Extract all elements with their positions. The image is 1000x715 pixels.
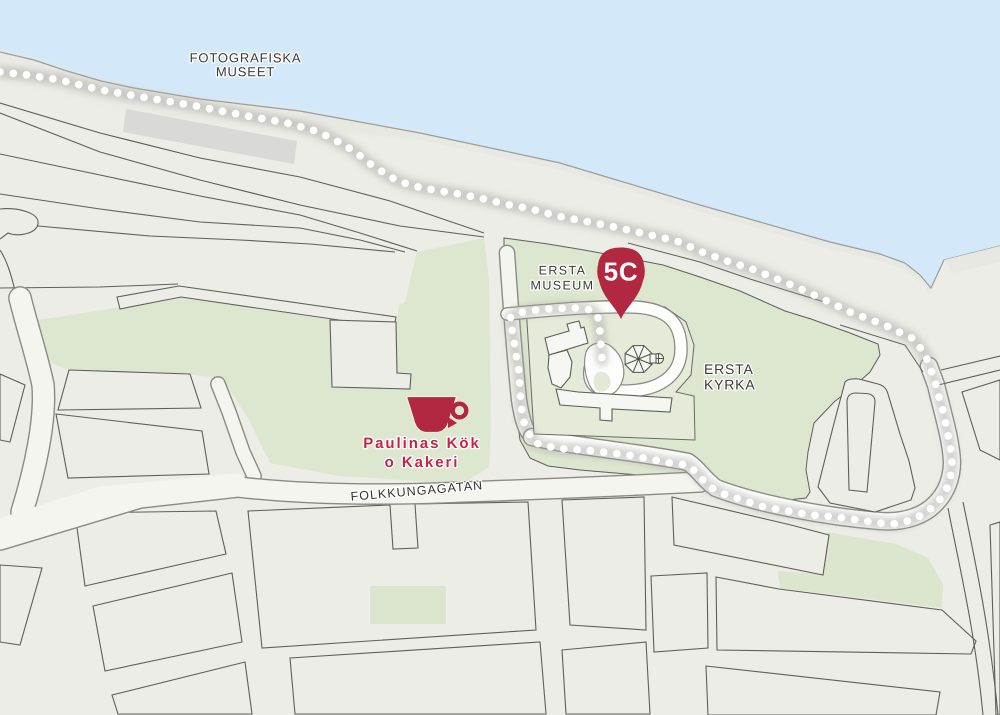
svg-text:ERSTA: ERSTA — [704, 361, 754, 377]
svg-text:MUSEUM: MUSEUM — [531, 278, 595, 292]
svg-text:KYRKA: KYRKA — [704, 377, 755, 393]
svg-text:MUSEET: MUSEET — [216, 64, 275, 79]
svg-text:Paulinas Kök: Paulinas Kök — [363, 435, 481, 452]
svg-text:5C: 5C — [604, 256, 639, 286]
svg-text:o Kakeri: o Kakeri — [385, 454, 460, 471]
svg-text:FOTOGRAFISKA: FOTOGRAFISKA — [190, 50, 302, 65]
svg-text:ERSTA: ERSTA — [539, 263, 587, 277]
